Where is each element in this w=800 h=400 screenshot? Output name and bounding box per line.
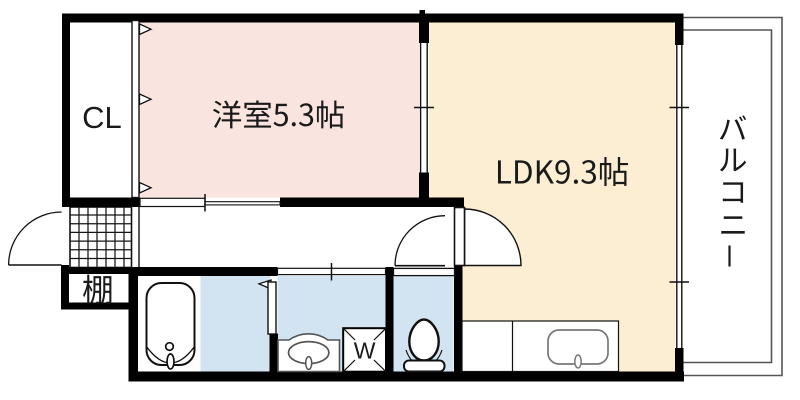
svg-text:W: W	[354, 338, 376, 364]
svg-text:CL: CL	[82, 100, 122, 135]
